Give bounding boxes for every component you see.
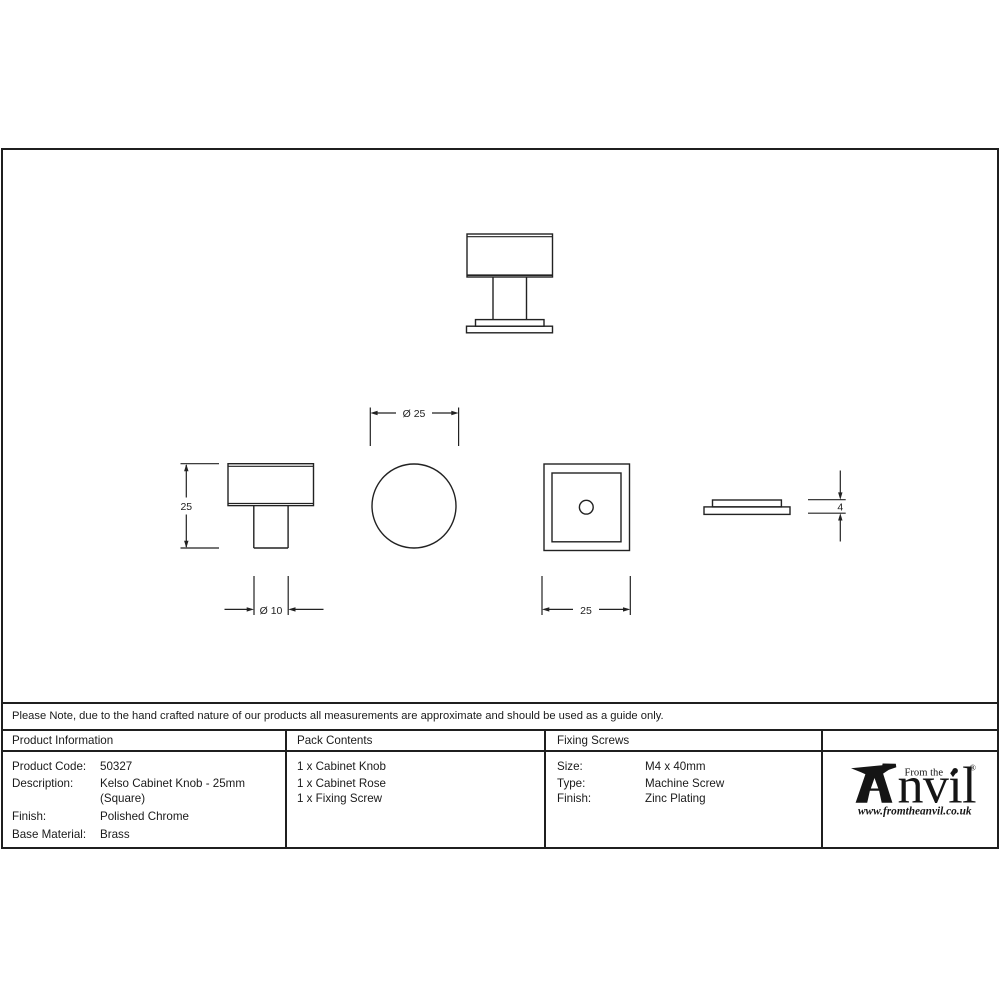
svg-text:Ø 25: Ø 25 bbox=[403, 408, 426, 420]
svg-text:25: 25 bbox=[180, 501, 192, 513]
svg-text:Ø 10: Ø 10 bbox=[260, 605, 283, 617]
svg-text:www.fromtheanvil.co.uk: www.fromtheanvil.co.uk bbox=[858, 806, 972, 818]
svg-text:25: 25 bbox=[580, 605, 592, 617]
svg-text:4: 4 bbox=[837, 502, 843, 514]
svg-text:®: ® bbox=[970, 762, 977, 772]
